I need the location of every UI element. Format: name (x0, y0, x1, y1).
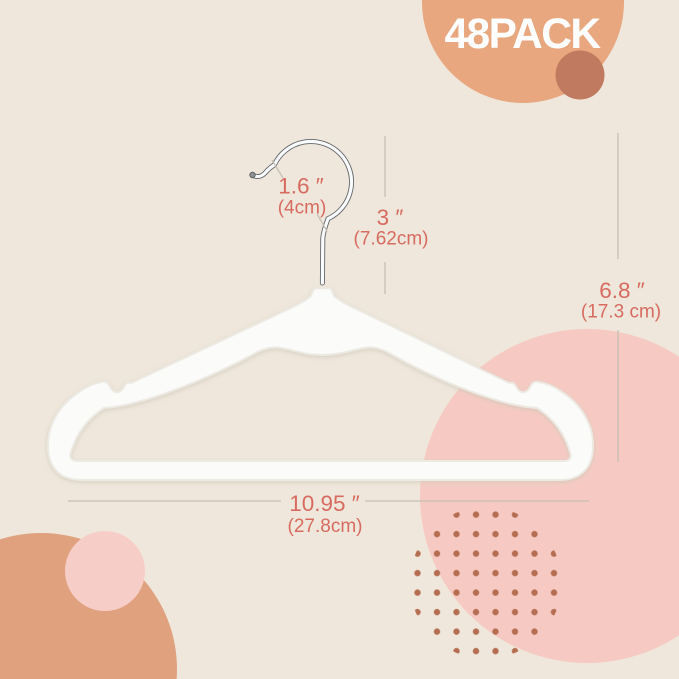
svg-text:6.8 ″: 6.8 ″ (599, 278, 645, 303)
svg-text:48PACK: 48PACK (445, 11, 602, 58)
svg-text:(4cm): (4cm) (278, 198, 327, 219)
svg-text:(17.3 cm): (17.3 cm) (581, 302, 661, 323)
svg-text:3 ″: 3 ″ (377, 205, 404, 230)
svg-text:(7.62cm): (7.62cm) (354, 229, 429, 250)
svg-text:10.95 ″: 10.95 ″ (289, 491, 360, 516)
svg-text:1.6 ″: 1.6 ″ (278, 174, 324, 199)
svg-text:(27.8cm): (27.8cm) (288, 516, 363, 537)
